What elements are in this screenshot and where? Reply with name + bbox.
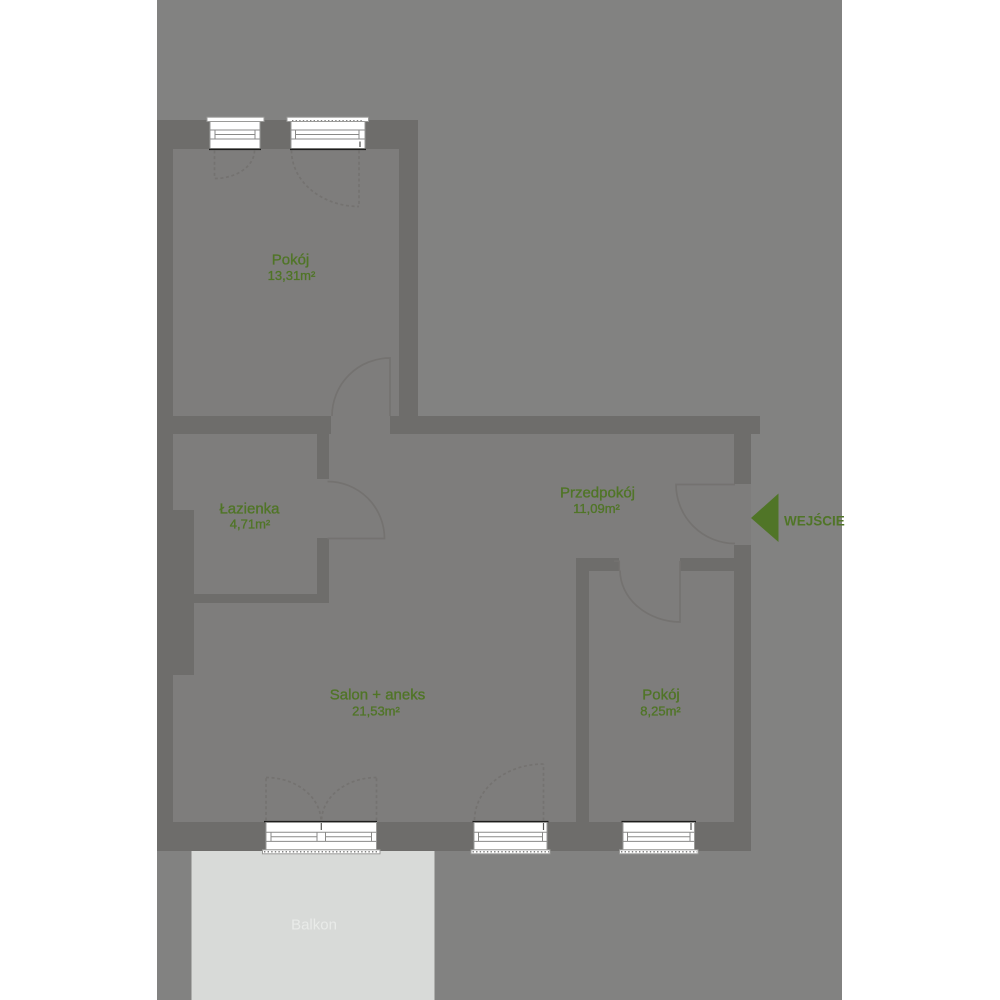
svg-text:Balkon: Balkon xyxy=(291,917,337,934)
svg-text:Przedpokój: Przedpokój xyxy=(560,485,635,502)
svg-text:Łazienka: Łazienka xyxy=(219,501,280,518)
svg-text:Pokój: Pokój xyxy=(272,252,310,269)
svg-text:WEJŚCIE: WEJŚCIE xyxy=(784,514,845,529)
svg-text:13,31m²: 13,31m² xyxy=(268,268,316,283)
svg-text:4,71m²: 4,71m² xyxy=(230,517,271,532)
svg-text:11,09m²: 11,09m² xyxy=(573,501,620,516)
svg-text:21,53m²: 21,53m² xyxy=(352,704,400,719)
svg-text:8,25m²: 8,25m² xyxy=(640,704,681,719)
svg-text:Salon + aneks: Salon + aneks xyxy=(330,687,426,704)
svg-text:Pokój: Pokój xyxy=(642,687,680,704)
